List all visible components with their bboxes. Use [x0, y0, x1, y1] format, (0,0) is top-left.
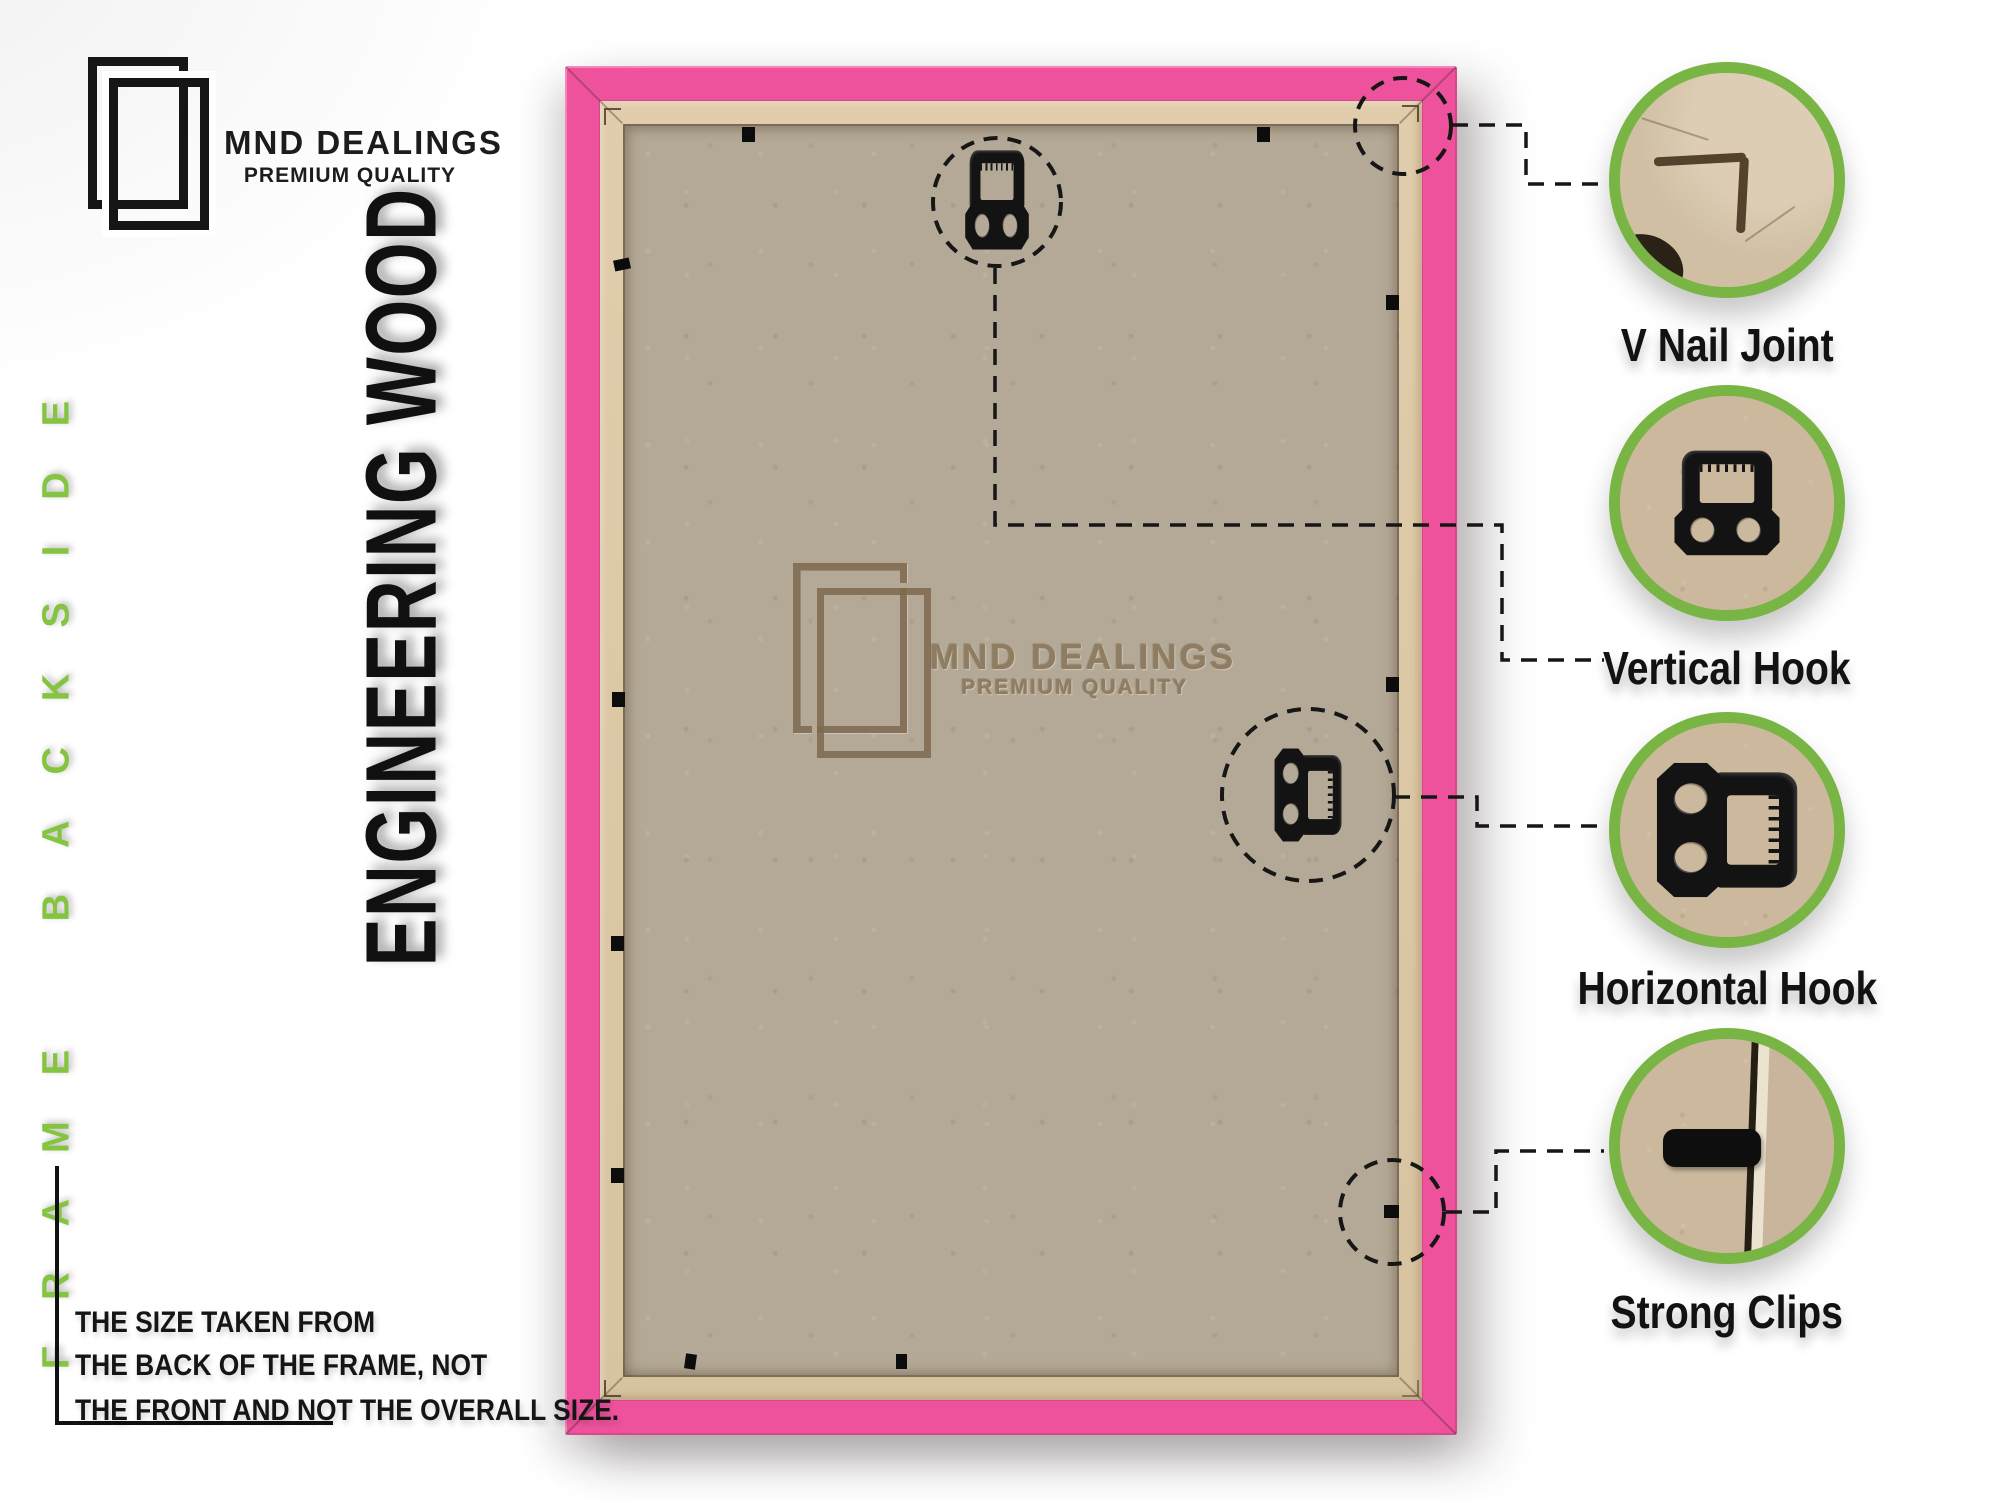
corner-mark	[1402, 1380, 1419, 1397]
v-nail-joint-photo	[1620, 73, 1834, 287]
product-infographic: MND DEALINGS PREMIUM QUALITY FRAME BACKS…	[0, 0, 2000, 1500]
clip	[1257, 127, 1270, 142]
clip	[1386, 677, 1399, 692]
callout-label-strong-clips: Strong Clips	[1537, 1285, 1917, 1339]
callout-label-horizontal-hook: Horizontal Hook	[1537, 961, 1917, 1015]
note-rule-vertical	[55, 1166, 59, 1424]
horizontal-hook-hardware	[1275, 749, 1342, 842]
callout-label-vertical-hook: Vertical Hook	[1537, 641, 1917, 695]
clip	[611, 936, 624, 951]
clip	[684, 1353, 697, 1369]
corner-mark	[1402, 105, 1419, 122]
vertical-hook-hardware	[965, 150, 1029, 249]
brand-logo-frame-icon	[109, 78, 209, 230]
note-line-2: THE BACK OF THE FRAME, NOT	[75, 1349, 487, 1383]
note-line-1: THE SIZE TAKEN FROM	[75, 1306, 375, 1340]
clip	[742, 127, 755, 142]
strong-clip-zoom	[1663, 1129, 1761, 1168]
brand-tagline: PREMIUM QUALITY	[224, 164, 476, 188]
corner-mark	[604, 108, 621, 125]
callout-circle-strong-clips	[1609, 1028, 1845, 1264]
vertical-hook-zoom	[1674, 451, 1779, 556]
callout-circle-horizontal-hook	[1609, 712, 1845, 948]
clip-circled	[1384, 1205, 1399, 1218]
connector-strong-clip	[1446, 1151, 1604, 1212]
watermark-tagline: PREMIUM QUALITY	[930, 676, 1220, 700]
callout-label-v-nail-joint: V Nail Joint	[1537, 318, 1917, 372]
note-line-3: THE FRONT AND NOT THE OVERALL SIZE.	[75, 1394, 619, 1428]
callout-circle-vertical-hook	[1609, 385, 1845, 621]
horizontal-hook-zoom	[1657, 763, 1797, 897]
watermark-logo-icon	[817, 588, 931, 758]
callout-circle-v-nail-joint	[1609, 62, 1845, 298]
clip	[896, 1354, 907, 1369]
watermark-name: MND DEALINGS	[930, 638, 1220, 678]
clip	[612, 692, 625, 707]
connector-v-nail	[1452, 125, 1606, 184]
brand-name: MND DEALINGS	[224, 124, 503, 162]
material-label-engineering-wood: ENGINEERING WOOD	[345, 187, 460, 966]
clip	[611, 1168, 624, 1183]
clip	[1386, 295, 1399, 310]
